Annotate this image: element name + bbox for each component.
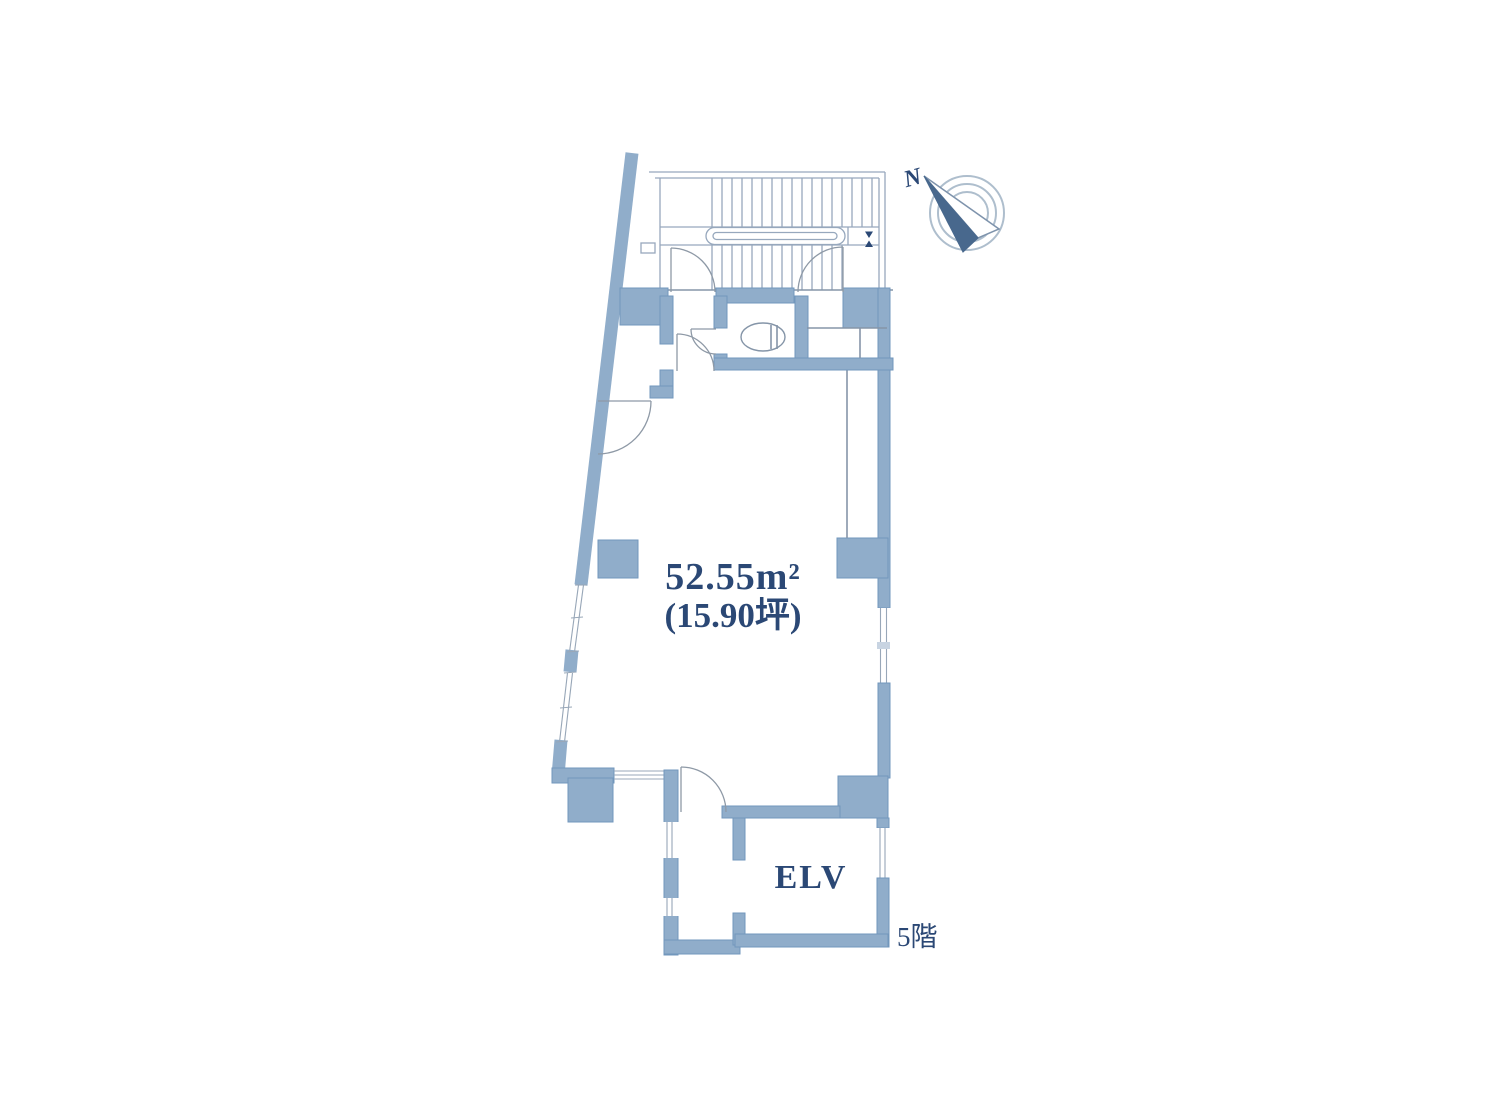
window-south [614, 771, 666, 779]
elevator-label: ELV [775, 859, 848, 896]
main-room-south-wall [722, 806, 840, 818]
door-toilet [691, 329, 716, 354]
wall-band-south [714, 358, 893, 370]
stair-wall-notch [641, 243, 655, 253]
window-annex-1 [663, 822, 679, 858]
window-annex-2 [663, 898, 679, 916]
stair-handrail [706, 228, 845, 245]
wall-toilet-north [716, 288, 794, 303]
stair-treads-upper [712, 178, 872, 227]
area-label: 52.55m² [665, 556, 801, 598]
elevator-room: ELV [733, 818, 890, 947]
north-label: N [900, 163, 926, 193]
floor-label: 5階 [897, 922, 938, 952]
door-stair-right [798, 247, 843, 292]
toilet-fixture [741, 323, 785, 351]
pillar-mid-east [837, 538, 888, 578]
north-compass-icon: N [900, 163, 1004, 252]
pillar-mid-west [598, 540, 638, 578]
window-west-2 [556, 672, 576, 742]
window-frame [877, 642, 890, 649]
window-east [876, 608, 891, 683]
floor-plan-svg: ELV 52.55m² (15.90坪) 5階 N [0, 0, 1511, 1120]
main-room: 52.55m² (15.90坪) [664, 556, 801, 635]
outer-wall-west-diagonal [556, 153, 632, 776]
stair-down-arrow-icon [865, 232, 873, 239]
pillar-south-west [568, 778, 613, 822]
stairwell [641, 172, 885, 295]
annex-west-wall [664, 770, 678, 955]
tsubo-label: (15.90坪) [664, 596, 801, 635]
door-stair-left [671, 248, 715, 292]
window-elevator-east [876, 828, 890, 878]
door-annex [681, 767, 726, 812]
floor-plan-page: ELV 52.55m² (15.90坪) 5階 N [0, 0, 1511, 1120]
annex-south-wall [664, 940, 740, 954]
window-west-1 [567, 585, 587, 652]
washroom-counter [807, 328, 887, 358]
stair-up-arrow-icon [865, 241, 873, 248]
pillar-south-east [838, 776, 888, 818]
